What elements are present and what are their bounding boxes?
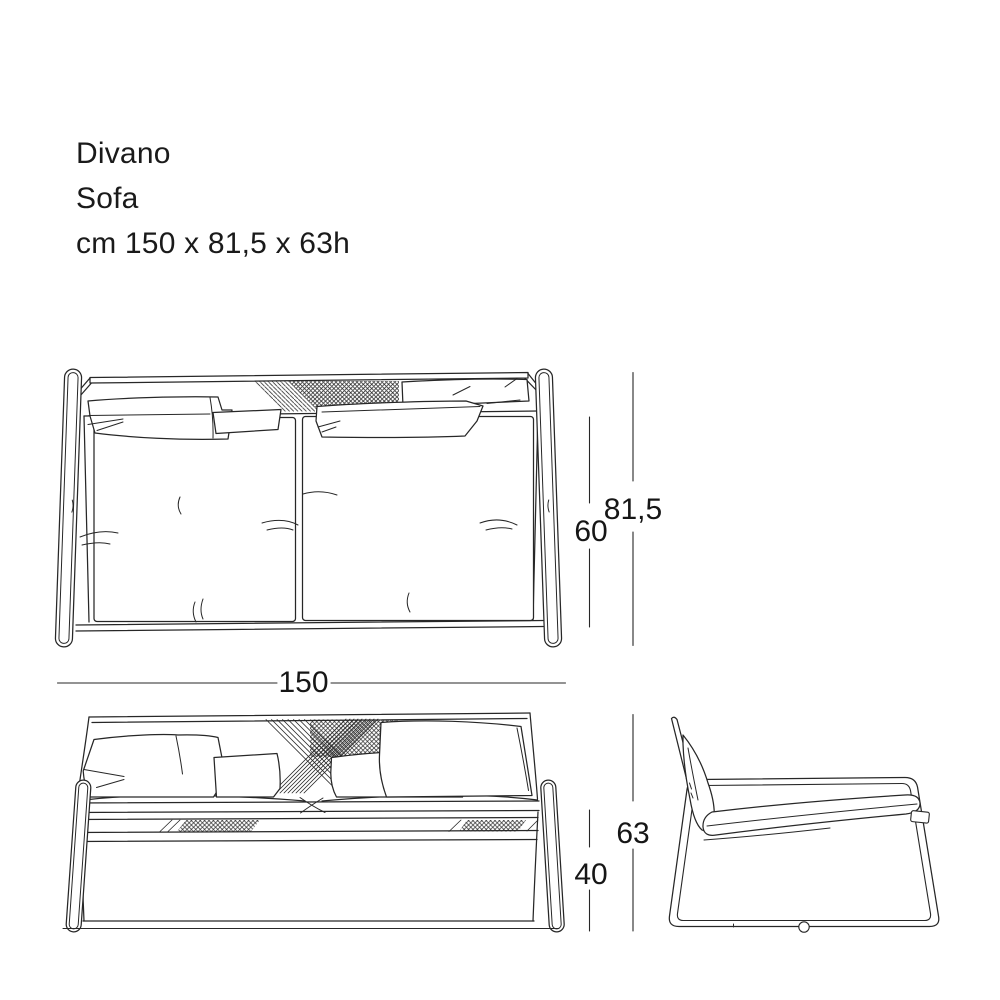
front-leg-left <box>66 780 92 933</box>
top-pillow-front-right <box>316 401 483 437</box>
sofa-technical-drawing-page: Divano Sofa cm 150 x 81,5 x 63h <box>0 0 1000 1000</box>
dim-label-60: 60 <box>574 515 607 548</box>
front-backrest-top <box>89 713 530 723</box>
front-pillow-center-left <box>214 754 280 798</box>
front-leg-right <box>540 780 564 933</box>
front-cushion-center-mark <box>300 798 325 814</box>
top-view-drawing <box>55 369 562 647</box>
front-view-drawing <box>63 713 565 932</box>
top-seat-cushion-right <box>303 417 534 621</box>
top-pillow-left-flap <box>213 410 281 434</box>
side-seat-cushion <box>703 795 920 835</box>
front-pillow-left-large <box>83 735 224 797</box>
front-view-dimensions: 63 40 <box>574 715 649 932</box>
side-floor-glide <box>799 922 809 932</box>
front-pillow-right-large <box>379 721 532 797</box>
technical-drawing-canvas: 60 81,5 150 <box>0 0 1000 1000</box>
dim-label-150: 150 <box>278 666 328 699</box>
top-armrest-left <box>55 369 82 647</box>
front-rail-hatch-patches <box>160 820 538 832</box>
side-frame-bracket <box>910 810 929 823</box>
top-seat-cushion-left <box>94 418 296 622</box>
side-view-drawing <box>669 717 938 932</box>
dim-label-40: 40 <box>574 858 607 891</box>
top-pillow-left-main <box>88 397 232 440</box>
dim-label-63: 63 <box>616 817 649 850</box>
dim-label-81-5: 81,5 <box>604 493 662 526</box>
top-armrest-right <box>535 369 562 647</box>
